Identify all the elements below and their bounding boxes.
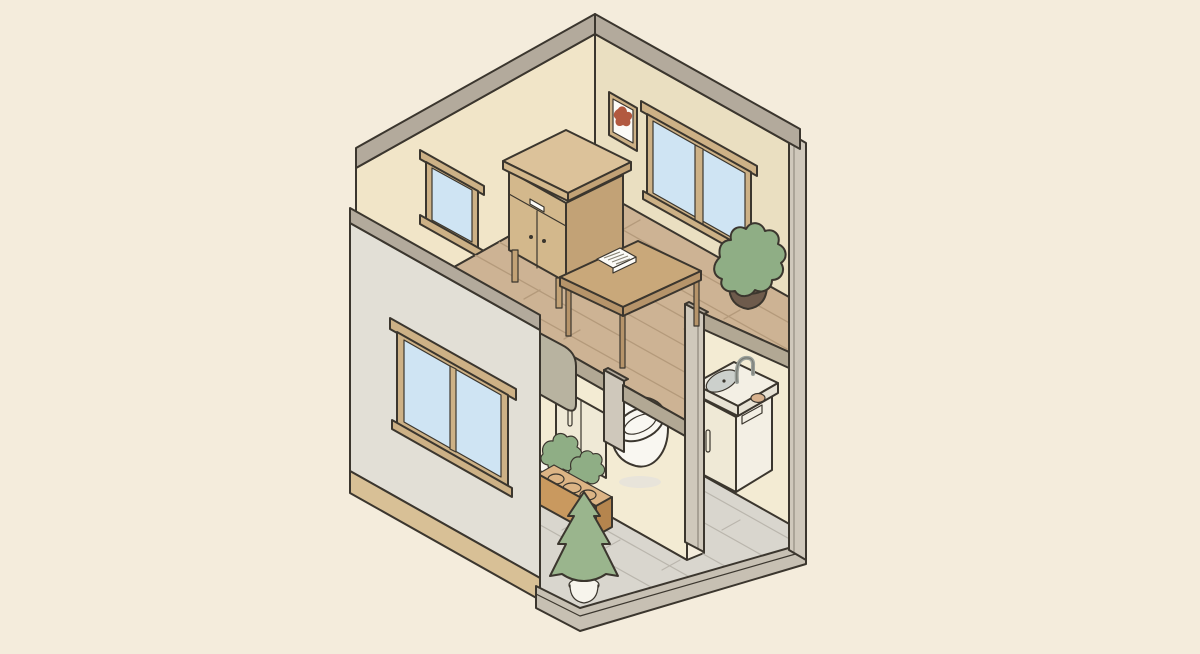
table-leg <box>620 312 625 368</box>
sink-unit <box>694 358 778 492</box>
sideboard-knob <box>542 239 546 243</box>
window-mullion <box>695 145 703 231</box>
house-cutaway-svg <box>0 0 1200 654</box>
sideboard-leg <box>512 250 518 282</box>
isometric-house-illustration <box>0 0 1200 654</box>
corner-column <box>789 133 806 560</box>
notch-post-face <box>604 370 624 452</box>
soap-dish <box>751 394 765 403</box>
column-face <box>789 133 806 560</box>
toilet-shadow <box>619 476 661 488</box>
table-leg <box>694 278 699 326</box>
sink-drain <box>722 379 725 382</box>
notch-post <box>604 368 628 452</box>
sideboard-knob <box>529 235 533 239</box>
window-mullion <box>450 366 456 452</box>
divider-post <box>685 302 708 552</box>
divider-post-face <box>685 304 704 552</box>
